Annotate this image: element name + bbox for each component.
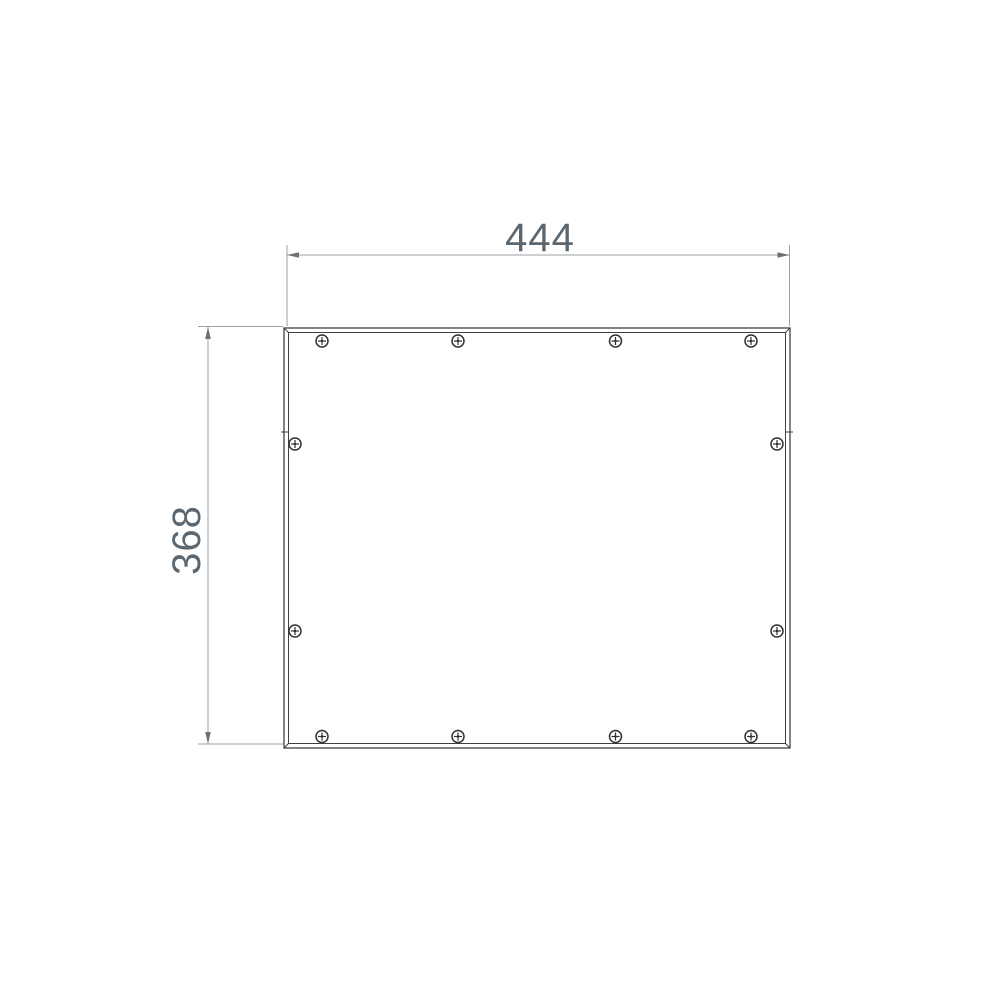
screw-head-icon bbox=[452, 335, 464, 347]
height-dimension-label: 368 bbox=[165, 505, 209, 575]
panel-dimension-drawing: 444 368 bbox=[0, 0, 1000, 1000]
screw-head-icon bbox=[289, 625, 301, 637]
screw-head-icon bbox=[745, 731, 757, 743]
screw-head-icon bbox=[316, 731, 328, 743]
corner-mitre-bottom-left bbox=[284, 744, 289, 749]
screw-head-icon bbox=[771, 625, 783, 637]
screw-head-icon bbox=[610, 335, 622, 347]
panel-outline bbox=[281, 328, 793, 748]
height-dimension: 368 bbox=[165, 327, 283, 745]
corner-mitre-top-left bbox=[284, 328, 289, 333]
screw-head-icon bbox=[610, 731, 622, 743]
height-arrowhead-top bbox=[205, 327, 211, 339]
width-arrowhead-left bbox=[287, 252, 299, 257]
corner-mitre-bottom-right bbox=[786, 744, 791, 749]
width-dimension: 444 bbox=[287, 216, 790, 326]
screw-head-icon bbox=[771, 438, 783, 450]
technical-drawing-canvas: 444 368 bbox=[0, 0, 1000, 1000]
screw-head-icon bbox=[289, 438, 301, 450]
screws-layer bbox=[289, 335, 783, 743]
width-arrowhead-right bbox=[778, 252, 790, 257]
corner-mitre-top-right bbox=[786, 328, 791, 333]
screw-head-icon bbox=[316, 335, 328, 347]
screw-head-icon bbox=[452, 731, 464, 743]
width-dimension-label: 444 bbox=[505, 216, 575, 260]
panel-outer-edge bbox=[284, 328, 790, 748]
height-arrowhead-bottom bbox=[205, 732, 211, 744]
screw-head-icon bbox=[745, 335, 757, 347]
panel-inner-edge bbox=[289, 333, 786, 744]
